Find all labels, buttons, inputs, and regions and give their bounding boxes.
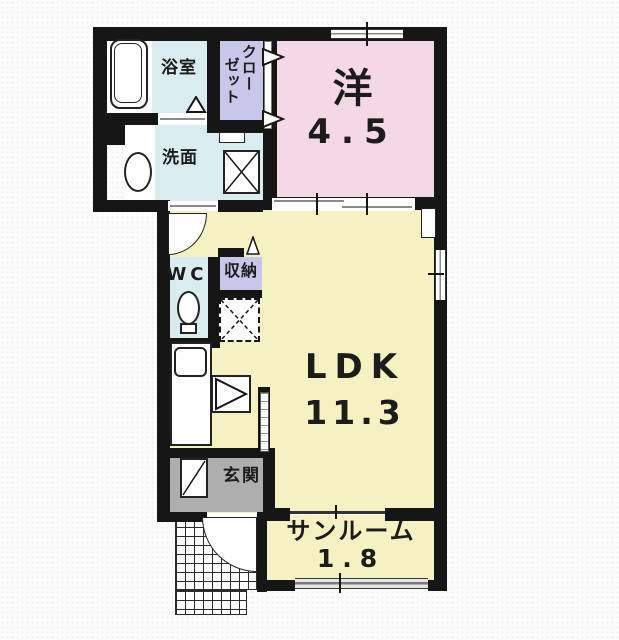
wall-upperblock-bottom-right — [218, 200, 263, 212]
pipe-space-niche — [421, 208, 436, 238]
washroom-label: 洗面 — [150, 150, 210, 168]
wall-porch-right — [257, 512, 267, 592]
western-room-label: 洋 4.5 — [295, 68, 410, 151]
window-top-tick — [366, 22, 368, 46]
sunroom-name: サンルーム — [272, 519, 430, 544]
washing-machine-icon — [223, 150, 260, 194]
washbasin-icon — [124, 152, 152, 192]
window-right-tick — [428, 273, 444, 275]
floor-plan: 浴室 洗面 クロー ゼット 洋 4.5 WC 収納 LDK 11.3 玄関 サン… — [0, 0, 619, 640]
wall-sunroom-bottom-right — [428, 580, 447, 591]
wall-stub-washroom — [107, 125, 125, 145]
wall-entrance-top — [157, 448, 265, 458]
ldk-label: LDK 11.3 — [290, 350, 420, 430]
toilet-bowl-icon — [177, 291, 200, 325]
storage-door-marker-icon — [246, 236, 261, 256]
bathtub-icon — [110, 39, 148, 109]
sliding-door-washroom — [168, 201, 218, 211]
closet-label-line1: クロー — [240, 44, 256, 92]
wall-storage-top — [218, 248, 244, 257]
wall-entrance-bottom — [157, 512, 207, 522]
ldk-name: LDK — [290, 350, 420, 386]
closet-door-arrow-icon — [262, 48, 285, 67]
closet-door-arrow-icon — [262, 110, 285, 129]
western-room-name: 洋 — [295, 68, 410, 110]
kitchen-sink-icon — [174, 347, 207, 377]
wall-sunroom-bottom-left — [267, 580, 295, 591]
sliding-door-tick-1 — [316, 193, 318, 215]
sliding-door-western-ldk — [272, 198, 415, 211]
wall-right — [434, 27, 447, 590]
wc-label: WC — [165, 266, 209, 285]
window-right — [435, 250, 446, 300]
wall-storage-bottom — [218, 290, 262, 298]
bathroom-door-marker-icon — [186, 96, 207, 114]
opening-ldk-sunroom — [290, 511, 385, 514]
ldk-area: 11.3 — [290, 396, 420, 431]
window-sunroom — [295, 578, 428, 589]
sliding-door-tick-2 — [366, 193, 368, 215]
door-gap-bathroom — [158, 114, 207, 124]
bathroom-label: 浴室 — [150, 60, 208, 78]
window-sunroom-tick — [339, 573, 341, 593]
western-room-area: 4.5 — [295, 115, 410, 151]
wall-bath-bottom — [95, 113, 158, 125]
sunroom-label: サンルーム 1.8 — [272, 519, 430, 572]
sliding-door-kitchen-hall — [260, 392, 269, 452]
refrigerator-space-icon — [219, 298, 260, 342]
porch-tiles-lower — [175, 590, 247, 615]
toilet-tank-icon — [180, 323, 197, 334]
range-triangle-icon — [211, 375, 251, 413]
closet-label-line2: ゼット — [223, 57, 239, 105]
shoe-cabinet-icon — [180, 458, 208, 498]
wall-niche-closet — [219, 132, 245, 143]
wall-bath-closet — [207, 27, 220, 125]
sunroom-area: 1.8 — [272, 546, 430, 572]
storage-label: 収納 — [219, 263, 263, 280]
entrance-label: 玄関 — [218, 468, 266, 486]
